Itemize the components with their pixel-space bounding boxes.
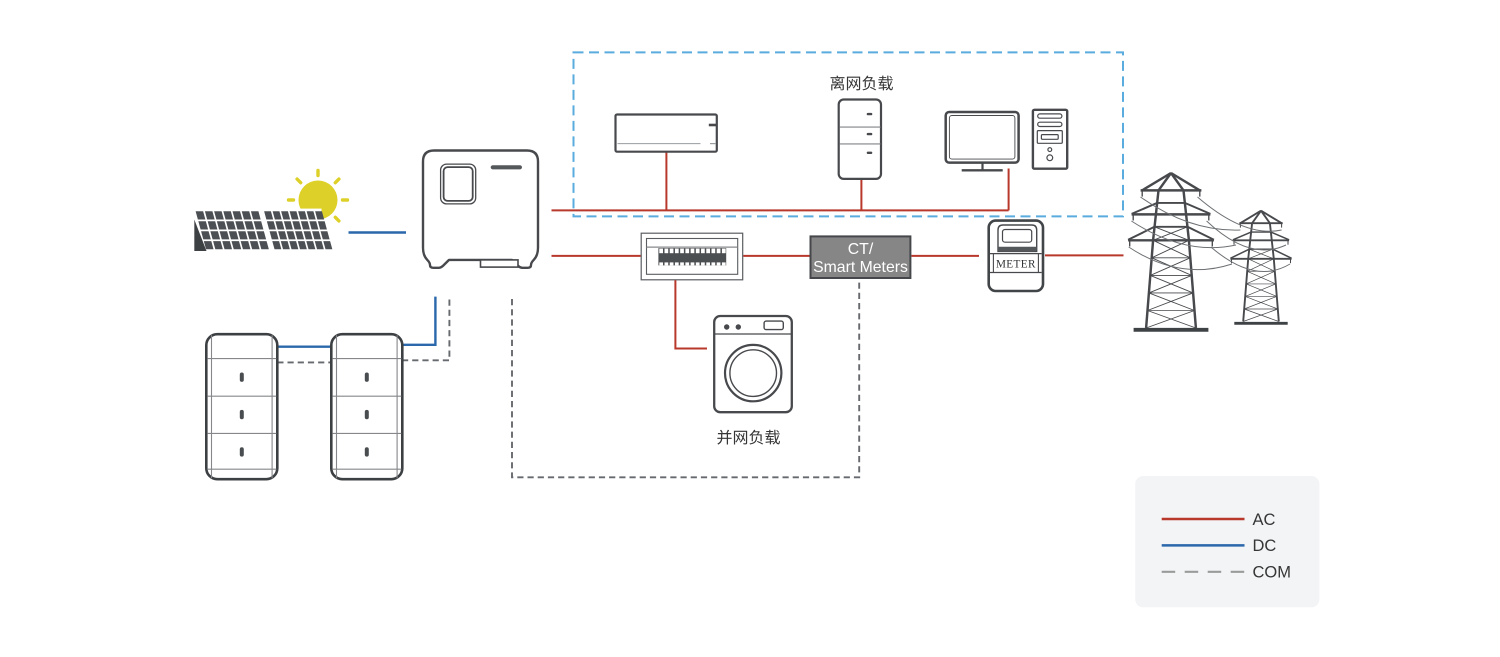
svg-text:Smart Meters: Smart Meters [813,259,908,276]
svg-text:DC: DC [1253,537,1277,555]
svg-text:METER: METER [996,258,1036,270]
svg-text:COM: COM [1253,564,1292,582]
svg-text:AC: AC [1253,511,1276,529]
svg-text:CT/: CT/ [848,241,874,258]
